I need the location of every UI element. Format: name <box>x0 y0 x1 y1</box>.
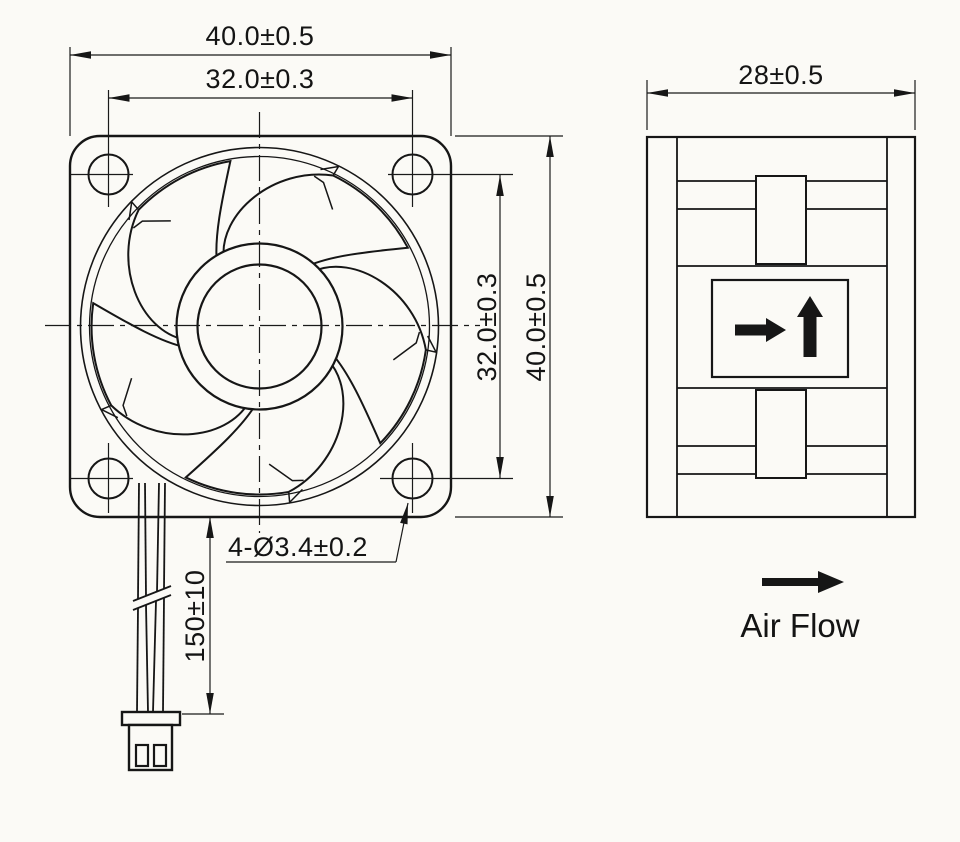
drawing-page: 40.0±0.5 32.0±0.3 32.0±0.3 40.0±0.5 4-Ø3… <box>0 0 960 842</box>
mounting-hole-label: 4-Ø3.4±0.2 <box>228 532 368 562</box>
connector-flange <box>122 712 180 725</box>
side-rib-bottom <box>756 390 806 478</box>
airflow-annotation: Air Flow <box>740 571 859 644</box>
side-rib-top <box>756 176 806 264</box>
dim-width-outer-label: 40.0±0.5 <box>206 21 315 51</box>
dim-height-outer-label: 40.0±0.5 <box>521 273 551 382</box>
dim-depth-label: 28±0.5 <box>738 60 823 90</box>
side-view: 28±0.5 <box>647 60 915 517</box>
dim-height-inner-label: 32.0±0.3 <box>472 273 502 382</box>
hub-inner-circle <box>198 265 322 389</box>
fan-technical-drawing: 40.0±0.5 32.0±0.3 32.0±0.3 40.0±0.5 4-Ø3… <box>0 0 960 842</box>
wire-length-label: 150±10 <box>180 570 210 663</box>
front-view <box>45 90 513 543</box>
air-flow-label: Air Flow <box>740 607 859 644</box>
air-flow-arrow-icon <box>762 571 844 593</box>
lead-wire-and-connector <box>122 483 180 770</box>
dim-width-inner-label: 32.0±0.3 <box>206 64 315 94</box>
